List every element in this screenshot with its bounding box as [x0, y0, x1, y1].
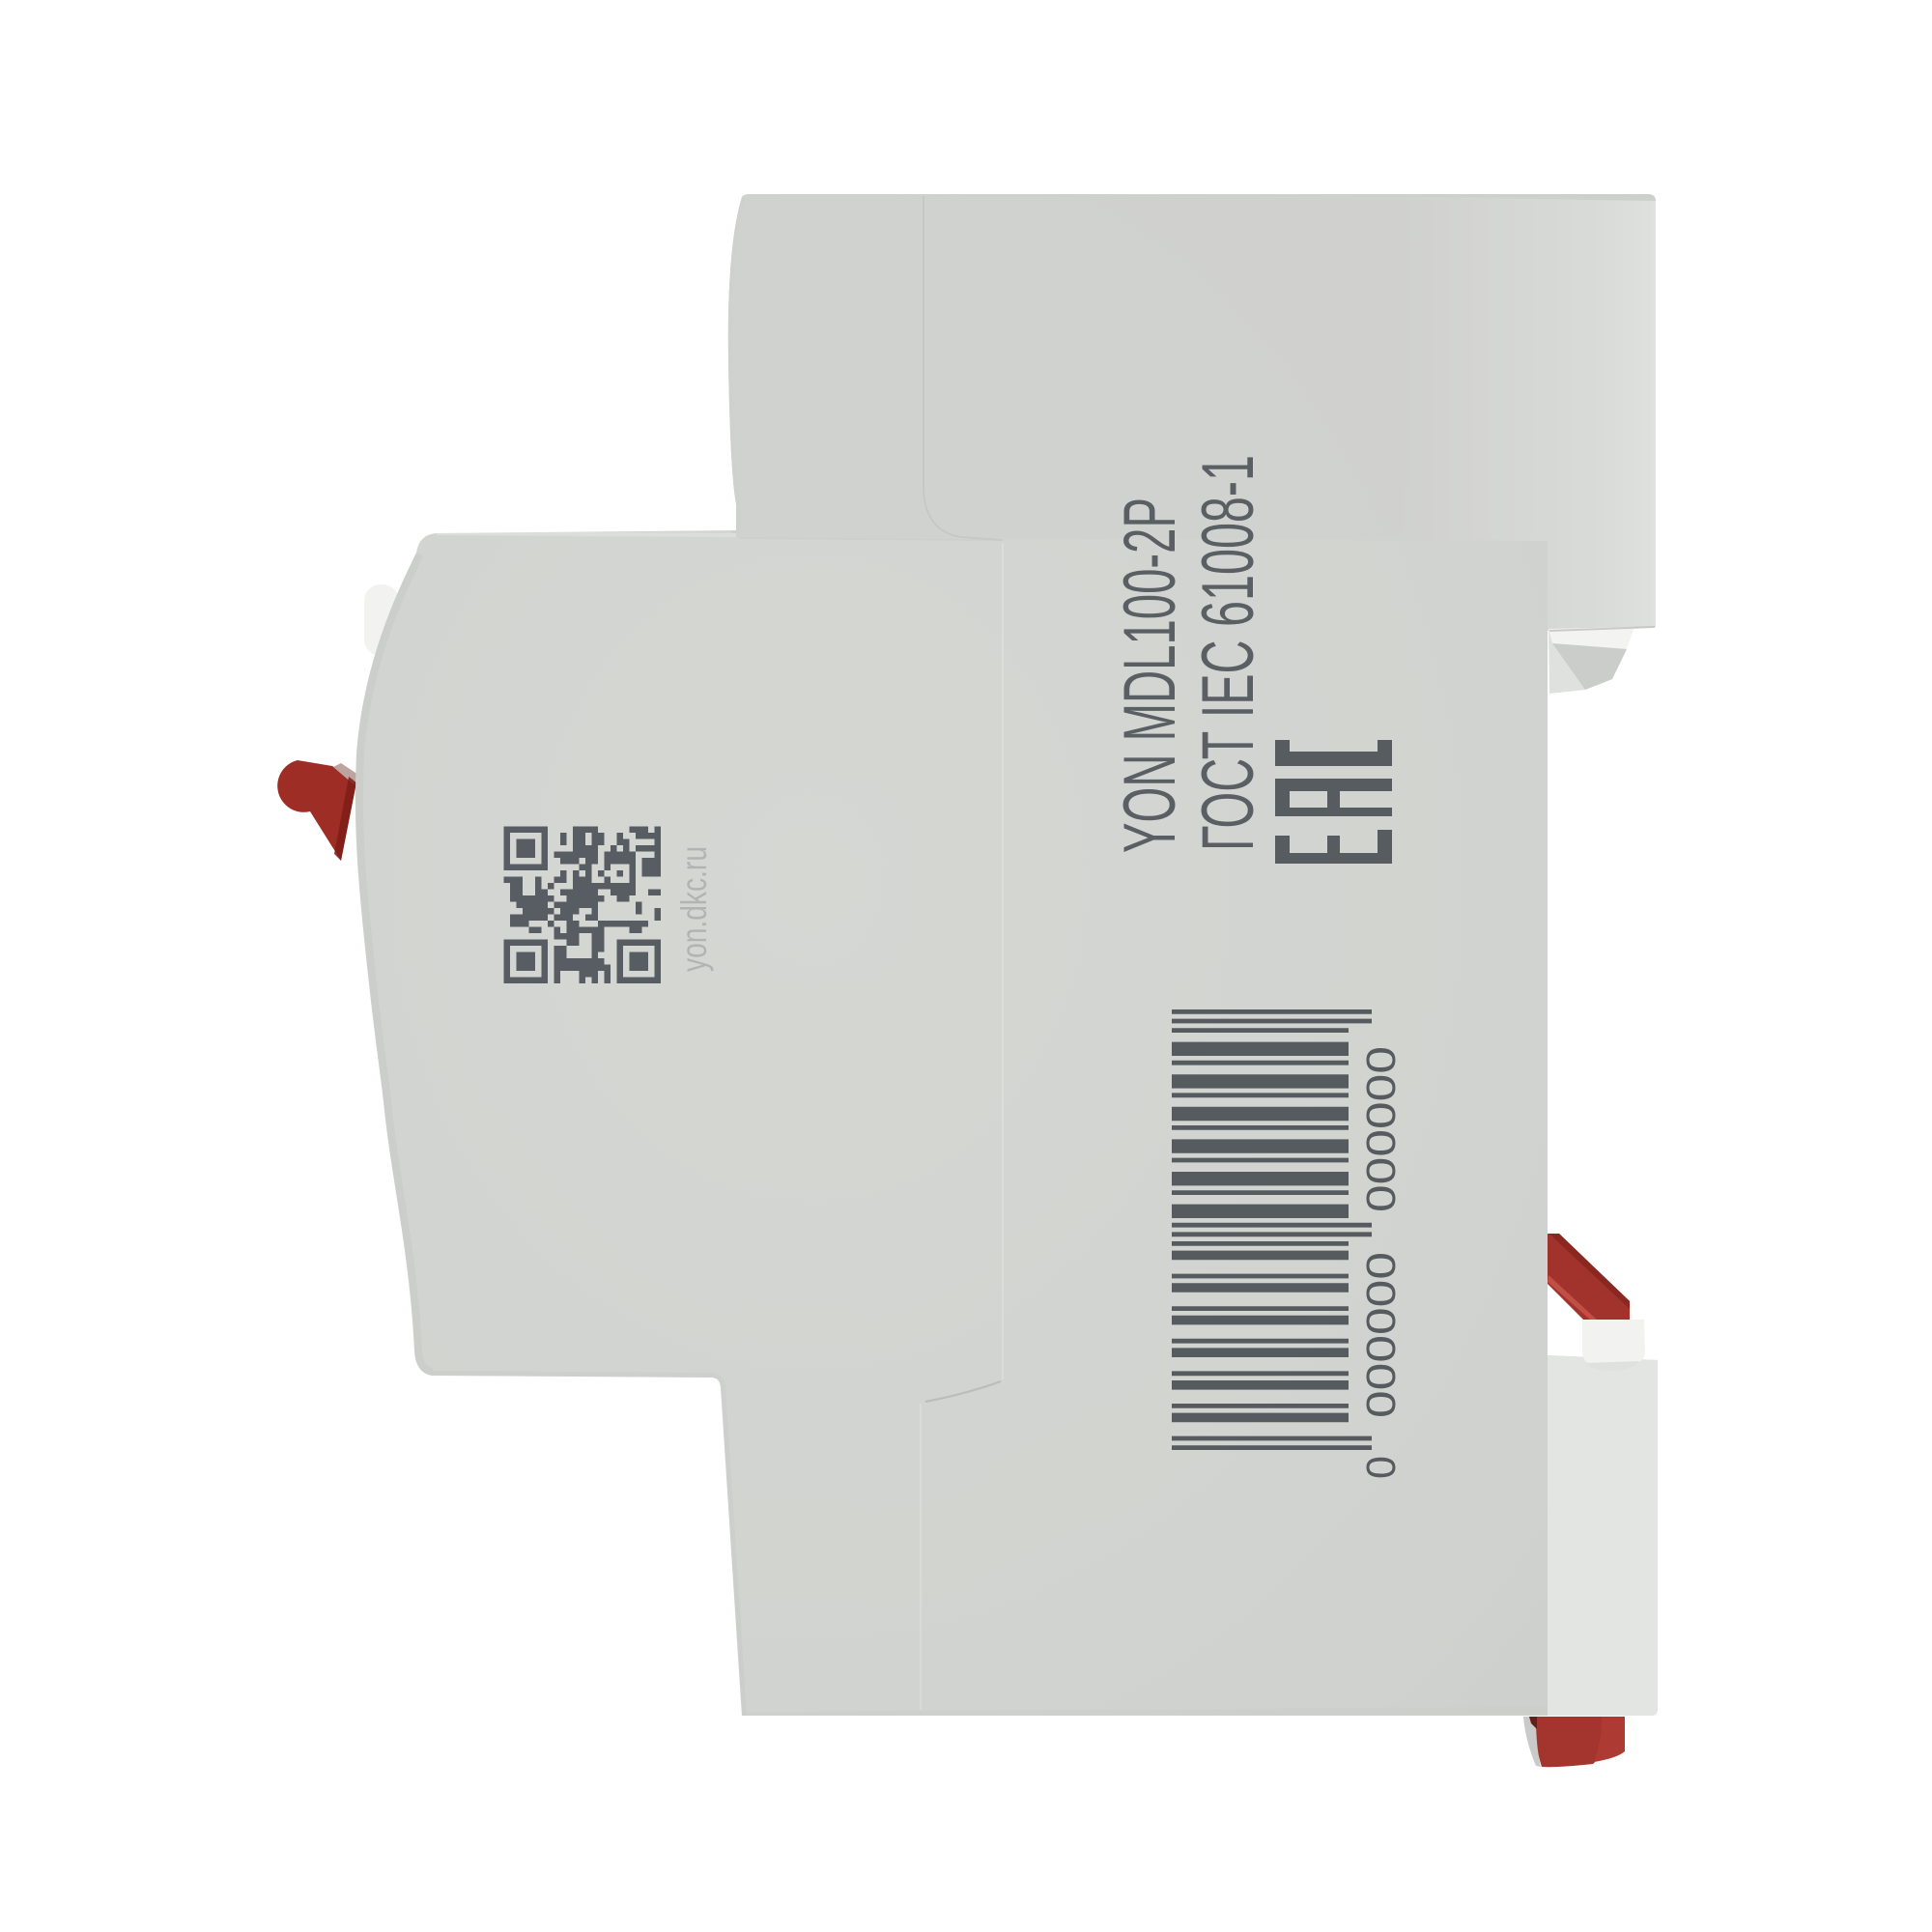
svg-text:ГОСТ IEC 61008-1: ГОСТ IEC 61008-1: [1187, 455, 1269, 851]
svg-text:0: 0: [1358, 1456, 1405, 1479]
svg-text:000000: 000000: [1358, 1252, 1405, 1418]
svg-text:yon.dkc.ru: yon.dkc.ru: [674, 846, 714, 972]
svg-text:YON MDL100-2P: YON MDL100-2P: [1109, 497, 1191, 853]
svg-text:000000: 000000: [1358, 1046, 1405, 1212]
